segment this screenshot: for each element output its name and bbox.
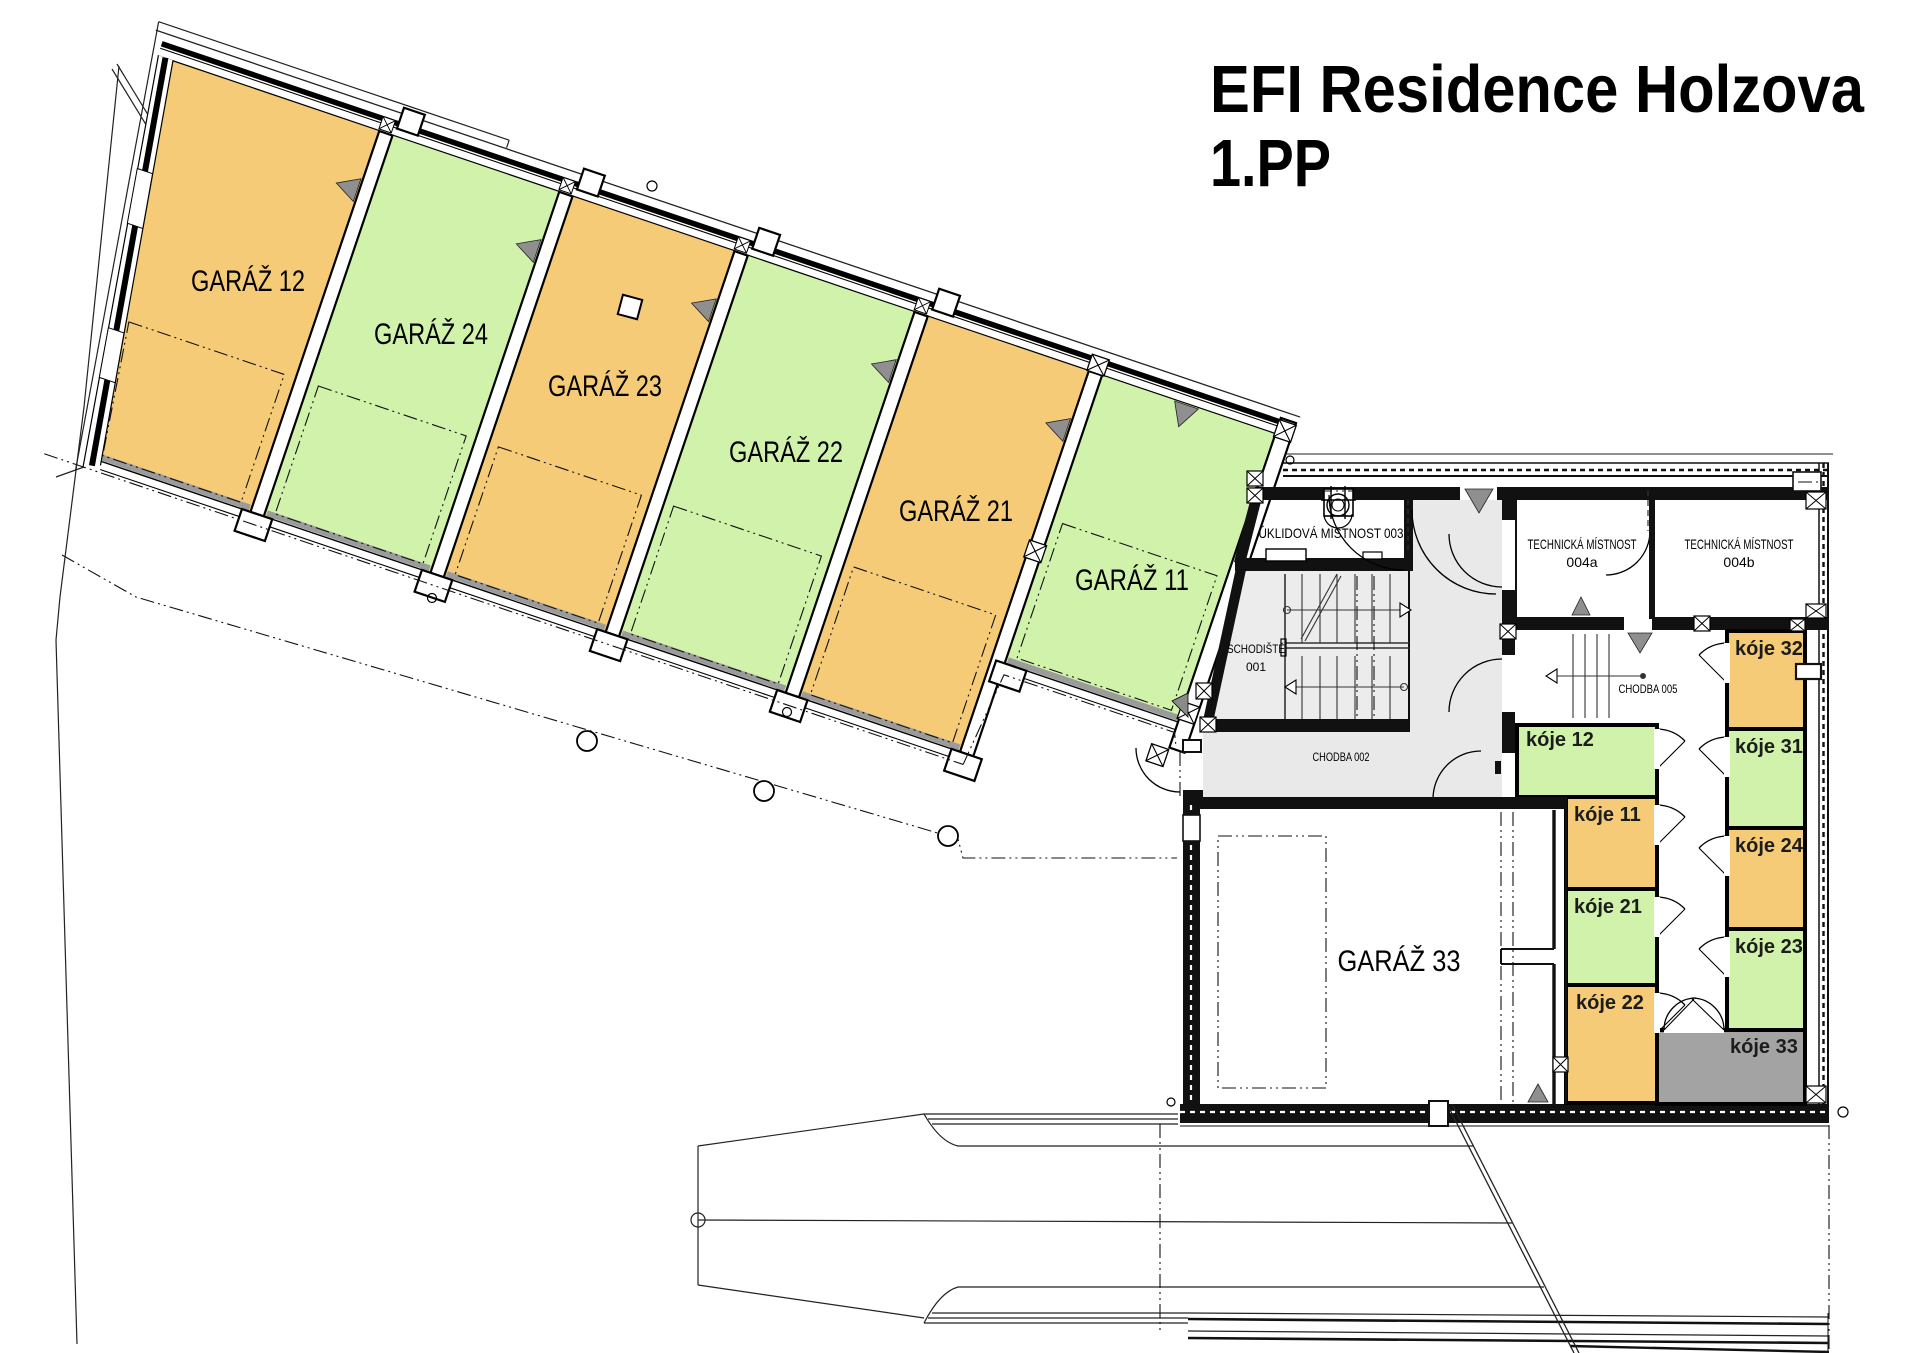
svg-text:CHODBA 005: CHODBA 005 — [1619, 682, 1678, 696]
svg-text:GARÁŽ 22: GARÁŽ 22 — [729, 436, 843, 469]
svg-text:kóje 22: kóje 22 — [1576, 992, 1644, 1014]
svg-text:GARÁŽ 12: GARÁŽ 12 — [191, 265, 305, 298]
svg-text:kóje 23: kóje 23 — [1735, 936, 1803, 958]
svg-text:kóje 32: kóje 32 — [1735, 638, 1803, 660]
svg-text:kóje 12: kóje 12 — [1526, 729, 1594, 751]
svg-text:004a: 004a — [1566, 554, 1597, 570]
svg-text:1.PP: 1.PP — [1210, 126, 1331, 201]
svg-text:TECHNICKÁ MÍSTNOST: TECHNICKÁ MÍSTNOST — [1528, 536, 1637, 552]
svg-text:GARÁŽ 33: GARÁŽ 33 — [1338, 945, 1461, 978]
svg-text:EFI Residence Holzova: EFI Residence Holzova — [1210, 52, 1865, 127]
svg-text:GARÁŽ 23: GARÁŽ 23 — [548, 370, 662, 403]
svg-text:004b: 004b — [1723, 554, 1754, 570]
svg-text:SCHODIŠTĚ: SCHODIŠTĚ — [1227, 641, 1285, 656]
svg-text:CHODBA 002: CHODBA 002 — [1313, 750, 1370, 764]
svg-text:GARÁŽ 21: GARÁŽ 21 — [899, 495, 1013, 528]
svg-text:001: 001 — [1246, 660, 1266, 674]
svg-text:kóje 11: kóje 11 — [1574, 804, 1641, 826]
svg-text:kóje 24: kóje 24 — [1735, 835, 1804, 857]
svg-text:kóje 31: kóje 31 — [1735, 736, 1803, 758]
svg-text:TECHNICKÁ MÍSTNOST: TECHNICKÁ MÍSTNOST — [1685, 536, 1794, 552]
svg-text:ÚKLIDOVÁ MÍSTNOST 003: ÚKLIDOVÁ MÍSTNOST 003 — [1259, 525, 1404, 541]
svg-text:GARÁŽ 24: GARÁŽ 24 — [374, 318, 488, 351]
svg-text:kóje 33: kóje 33 — [1730, 1036, 1798, 1058]
svg-text:GARÁŽ 11: GARÁŽ 11 — [1075, 564, 1189, 597]
svg-text:kóje 21: kóje 21 — [1574, 896, 1642, 918]
